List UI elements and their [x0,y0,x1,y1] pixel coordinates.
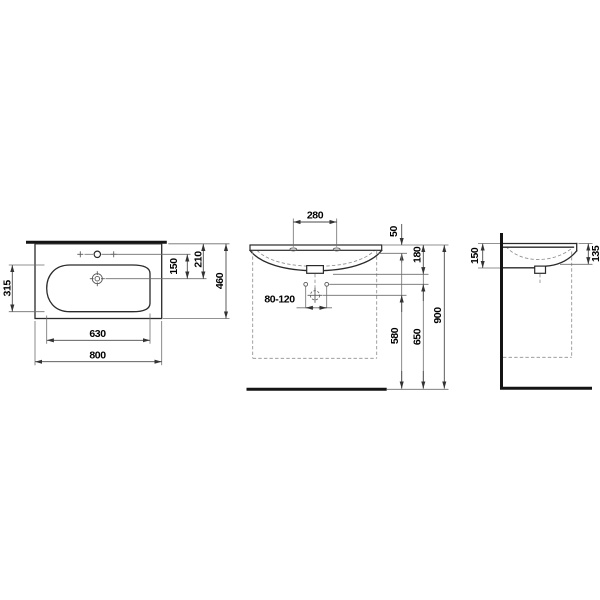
front-rim [250,245,382,250]
dim-80-120-label: 80-120 [264,294,295,306]
dim-side-front-height: 135 [588,244,600,265]
dim-front-drain-height: 580 [389,253,402,388]
side-view: 150 135 [469,233,600,388]
dim-650-label: 650 [412,328,424,345]
dim-280-label: 280 [307,209,324,221]
front-extension-lines [293,219,448,308]
dim-plan-total-depth: 460 [214,244,226,319]
dim-210-label: 210 [192,251,204,268]
dim-315-label: 315 [2,280,14,297]
dim-plan-basin-width: 630 [47,328,150,340]
washbasin-dimension-drawing: 315 150 210 460 630 800 [0,0,600,600]
dim-plan-tap-to-drain: 150 [168,254,187,278]
side-bowl-hidden-line [506,247,572,260]
dim-150-plan-label: 150 [168,258,180,275]
dim-630-label: 630 [89,328,106,340]
fixing-hole-left [304,282,308,286]
dim-900-label: 900 [432,307,444,324]
dim-580-label: 580 [389,327,401,344]
dim-plan-basin-depth: 315 [2,265,14,312]
dim-150-side-label: 150 [469,247,481,264]
dim-460-label: 460 [214,272,226,289]
dim-180-label: 180 [412,246,424,263]
dim-side-wall-height: 150 [469,244,483,269]
dim-front-fixing-height: 650 [412,274,424,388]
dim-plan-total-width: 800 [35,349,162,361]
drain-axis-icon [308,274,323,303]
plan-bowl-outline [47,265,150,312]
drawing-canvas: 315 150 210 460 630 800 [0,0,600,600]
dim-front-rim-to-outlet: 180 [412,245,424,274]
dim-135-label: 135 [590,245,600,262]
drain-icon [90,271,105,286]
front-view: 280 80-120 50 580 180 [247,209,449,389]
plan-view: 315 150 210 460 630 800 [2,242,230,365]
dim-plan-edge-to-drain: 210 [192,244,204,279]
front-bowl-hidden-line [257,250,375,266]
dim-front-rim-to-apron: 50 [388,224,402,263]
dim-front-rim-height: 900 [432,245,444,389]
front-drain-trap [307,266,324,274]
dim-50-label: 50 [388,226,400,237]
side-drain-trap [535,266,546,273]
dim-800-label: 800 [89,349,106,361]
tap-hole-icon [94,251,100,257]
dim-front-tap-spacing: 280 [293,209,336,222]
fixing-hole-right [325,282,329,286]
